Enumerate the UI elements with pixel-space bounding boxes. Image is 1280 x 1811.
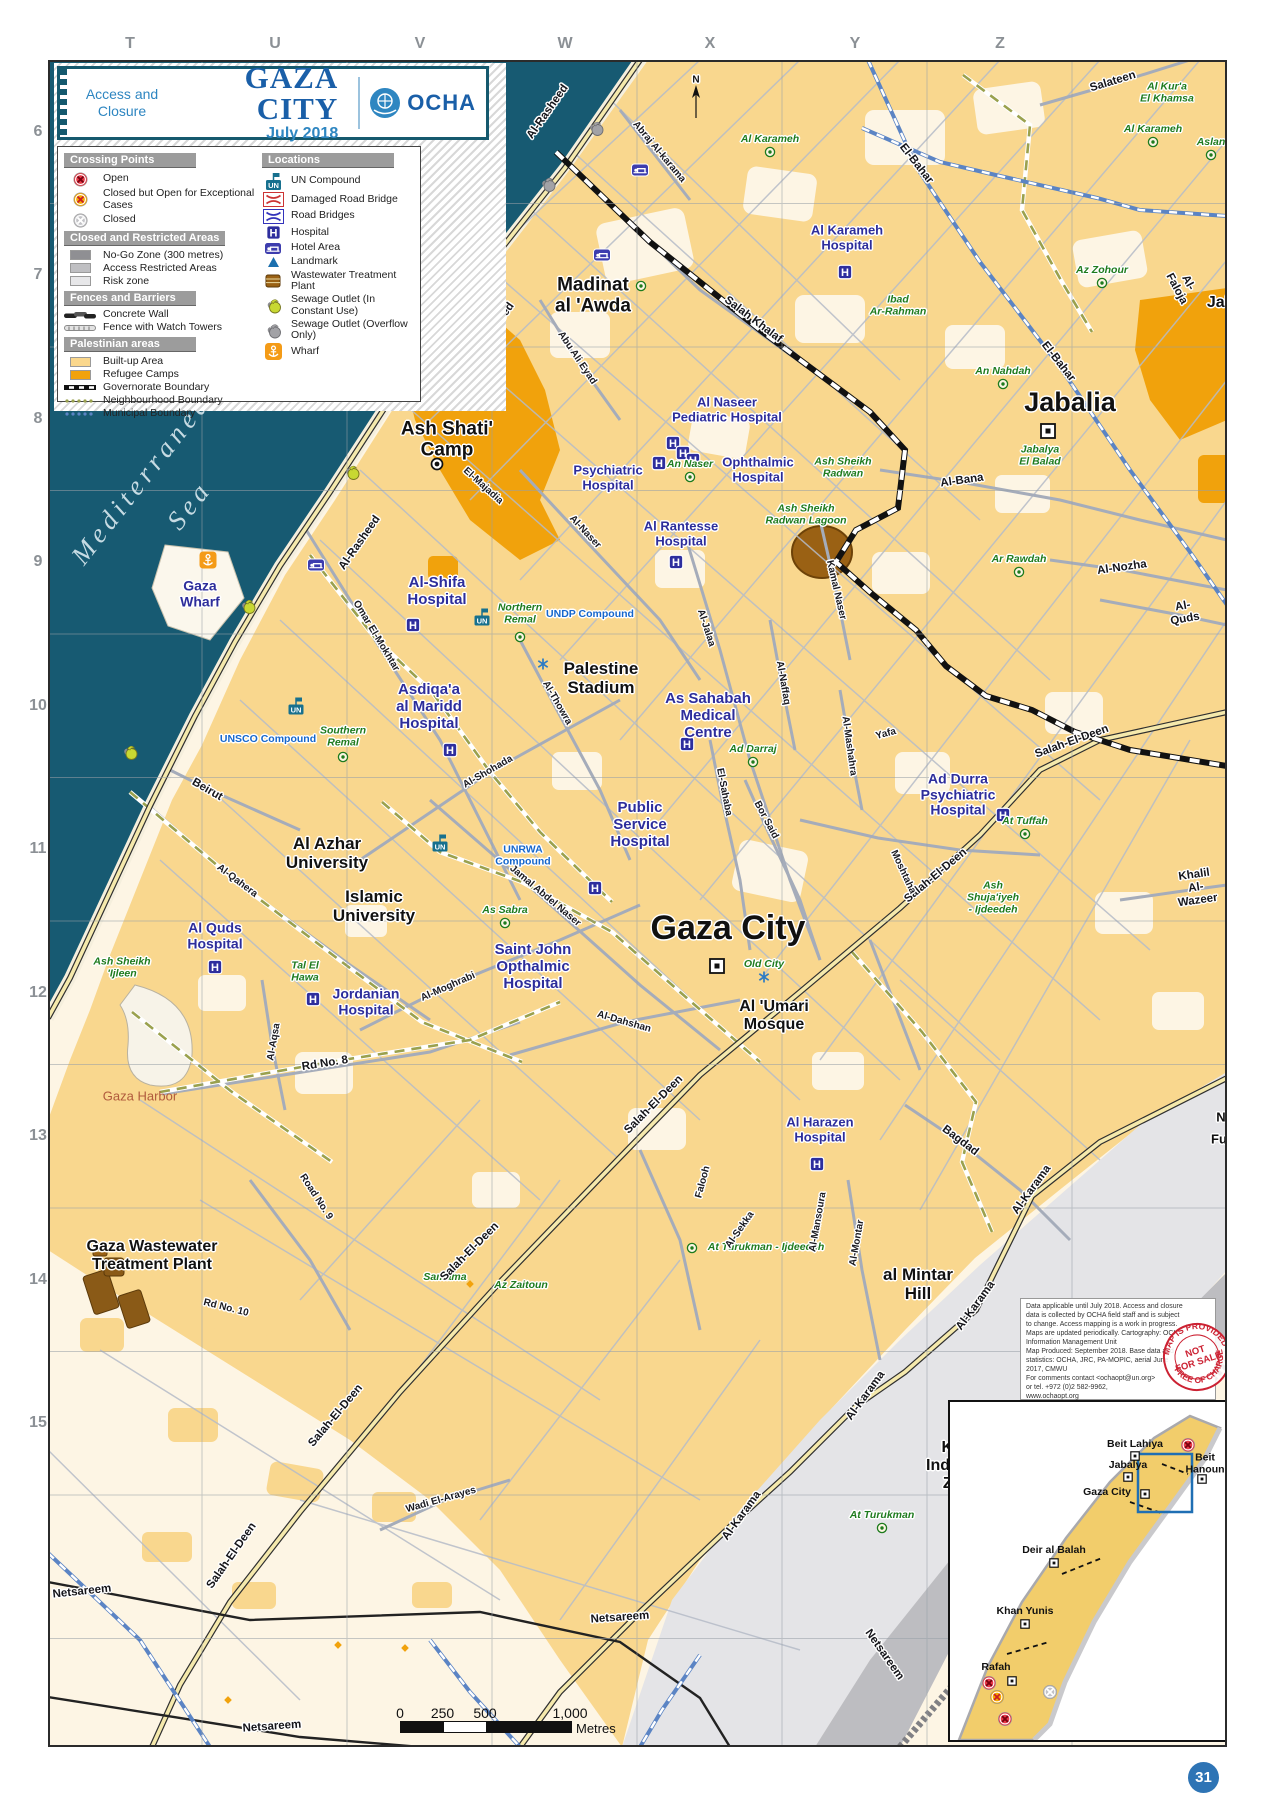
inset-label-layer: Beit LahiyaBeit HanounJabalyaGaza CityDe… [950,1402,1225,1740]
inset-city-label: Beit Hanoun [1185,1452,1224,1476]
facility-label: Saint John Opthalmic Hospital [495,942,572,992]
road-label: Netsareem [862,1627,906,1683]
road-label: Khalil Al-Wazeer [1174,866,1219,910]
fence-icon [64,324,96,332]
town-marker-icon [1140,1489,1150,1499]
road-label: Al-Rasheed [525,82,572,141]
facility-label: Al Harazen Hospital [786,1115,853,1144]
road-label: Al-Shohada [461,753,515,790]
map-label: UNSCO Compound [220,734,316,746]
road-label: Jamal Abdel Naser [507,863,582,929]
locality-label: Al Karameh [1124,124,1182,136]
not-for-sale-stamp: MAP IS PROVIDED FREE OF CHARGE NOT FOR S… [1161,1321,1227,1397]
legend-row: Wastewater Treatment Plant [262,270,414,293]
disclaimer-line: Data applicable until July 2018. Access … [1026,1303,1210,1312]
legend-row: Governorate Boundary [64,382,262,394]
scale-tick: 1,000 [552,1705,587,1721]
inset-city-label: Jabalya [1109,1460,1148,1472]
inset-city-label: Deir al Balah [1022,1545,1086,1557]
map-label: UNDP Compound [546,609,634,621]
un-emblem-icon [368,86,402,120]
inset-overview-map: Beit LahiyaBeit HanounJabalyaGaza CityDe… [948,1400,1227,1742]
road-label: Salah-El-Deen [622,1073,686,1137]
map-label: Palestine Stadium [564,659,639,697]
sw1-icon [64,250,96,260]
legend-row: Sewage Outlet (In Constant Use) [262,294,414,317]
legend-label: Wastewater Treatment Plant [291,270,414,293]
inset-city-label: Gaza City [1083,1487,1131,1499]
facility-label: Asdiqa'a al Maridd Hospital [396,682,462,732]
road-label: Falooh [693,1165,712,1200]
map-title-area: GAZA CITY July 2018 [177,62,348,143]
map-canvas: HHHHHHHHHHHHHHUNUNUN Mediterranean SeaMa… [48,60,1227,1747]
locality-label: At Tuffah [1002,816,1048,828]
scale-tick: 0 [396,1705,404,1721]
legend-section-header: Crossing Points [64,153,196,168]
sw3-icon [64,276,96,286]
facility-label: Al Naseer Pediatric Hospital [672,395,782,424]
road-label: Salah-El-Deen [1033,723,1110,762]
crossing-status-icon [998,1712,1013,1727]
crossing-status-icon [982,1676,997,1691]
road-label: Salah-El-Deen [205,1521,260,1592]
inset-city-label: Beit Lahiya [1107,1439,1163,1451]
wastewater-plant-icon [262,274,284,288]
locality-label: An Nahdah [975,366,1030,378]
map-label: Jabalia [1207,294,1227,312]
grid-col-Z: Z [995,35,1005,53]
legend-label: Access Restricted Areas [103,263,262,275]
legend-section-header: Locations [262,153,394,168]
town-marker-icon [1130,1451,1140,1461]
grid-row-6: 6 [34,123,43,141]
scale-unit: Metres [576,1721,616,1736]
locality-label: Ibad Ar-Rahman [870,294,927,318]
road-label: Al-Naser [567,513,603,551]
locality-label: At Turukman [850,1510,915,1522]
sewage-outlet-constant-icon [262,297,284,314]
road-label: Al-Naffaq [774,660,793,706]
road-label: El-Bahar [1038,339,1077,384]
grid-row-9: 9 [34,553,43,571]
locality-label: As Sabra [482,905,528,917]
road-label: Beirut [189,776,224,804]
wharf-icon [262,343,284,360]
svg-text:UN: UN [268,181,279,190]
legend-row: Closed [64,213,262,228]
map-label: Al Azhar University [286,834,368,872]
legend-label: Landmark [291,256,414,268]
program-line1: Access and [67,86,177,104]
xR-icon [64,172,96,187]
grid-row-15: 15 [29,1414,47,1432]
bridgeB-icon [262,209,284,224]
sw2-icon [64,263,96,273]
legend-row: Built-up Area [64,356,262,368]
locality-label: Northern Remal [498,602,542,626]
road-label: Al-Nozha [1096,558,1147,578]
town-marker-icon [1049,1558,1059,1568]
facility-label: Al-Shifa Hospital [407,575,466,609]
locality-label: Tal El Hawa [291,960,319,984]
disclaimer-line: data is collected by OCHA field staff an… [1026,1312,1210,1321]
road-label: Yafa [875,726,898,742]
grid-col-V: V [415,35,426,53]
road-label: Al-Aqsa [265,1022,283,1061]
hotel-icon [262,242,284,255]
map-label: Al 'Umari Mosque [739,998,809,1034]
locality-label: Ash Sheikh Radwan [814,456,871,480]
legend-row: Open [64,172,262,187]
facility-label: Ophthalmic Hospital [722,455,794,484]
legend-row: Concrete Wall [64,309,262,321]
legend-row: No-Go Zone (300 metres) [64,250,262,262]
map-label: N [1216,1111,1225,1126]
facility-label: Psychiatric Hospital [573,463,642,492]
locality-label: Ad Darraj [729,744,776,756]
legend-section-header: Closed and Restricted Areas [64,231,225,246]
legend-label: Wharf [291,346,414,358]
legend-label: Fence with Watch Towers [103,322,262,334]
road-label: Al-Karama [844,1369,888,1423]
legend-label: Sewage Outlet (In Constant Use) [291,294,414,317]
road-label: Al-Montar [847,1219,866,1267]
map-label: UNRWA Compound [495,844,550,868]
wall-icon [64,311,96,320]
legend-column: Crossing PointsOpenClosed but Open for E… [64,151,262,397]
legend: Crossing PointsOpenClosed but Open for E… [57,146,421,402]
map-date: July 2018 [177,124,338,143]
legend-row: Wharf [262,343,414,360]
locality-label: Ash Sheikh 'Ijleen [93,956,150,980]
legend-row: Municipal Boundary [64,408,262,420]
facility-label: As Sahabah Medical Centre [665,691,751,741]
map-label: al Mintar Hill [883,1265,953,1303]
locality-label: Ar Rawdah [992,554,1047,566]
legend-label: Neighbourhood Boundary [103,395,262,407]
road-label: Salah-El-Deen [306,1382,366,1450]
scale-bar-graphic [400,1721,572,1733]
program-name: Access and Closure [67,86,177,121]
town-marker-icon [1020,1619,1030,1629]
legend-row: Refugee Camps [64,369,262,381]
road-label: Al-Faloja [1160,260,1204,312]
legend-label: Hospital [291,227,414,239]
locality-label: Az Zaitoun [494,1280,548,1292]
town-marker-icon [1123,1472,1133,1482]
locality-label: Aslan [1197,137,1226,149]
page-number-badge: 31 [1188,1762,1219,1793]
legend-label: Damaged Road Bridge [291,194,414,206]
legend-section-header: Palestinian areas [64,337,196,352]
legend-label: Risk zone [103,276,262,288]
locality-label: Old City [744,959,784,971]
road-label: Road No. 9 [297,1172,335,1222]
hospital-icon: H [262,225,284,240]
road-label: Al-Mashahra [839,716,858,777]
road-label: Abu Ali Eyad [555,329,599,386]
road-label: Al-Karama [720,1489,764,1543]
road-label: Bor Said [751,799,780,841]
svg-text:H: H [269,228,277,240]
legend-label: Concrete Wall [103,309,262,321]
map-label: Gaza Harbor [103,1090,177,1105]
ocha-wordmark: OCHA [407,90,476,116]
sewage-outlet-overflow-icon [262,322,284,339]
gov-icon [64,384,96,391]
legend-label: UN Compound [291,175,414,187]
town-marker-icon [1197,1474,1207,1484]
facility-label: Al Rantesse Hospital [644,519,718,548]
legend-label: Refugee Camps [103,369,262,381]
legend-label: Closed [103,214,262,226]
perforation-edge [60,69,67,137]
map-label: Fu [1211,1133,1227,1148]
map-label: Ash Shati' Camp [401,419,493,462]
neigh-icon [64,398,96,404]
road-label: Salah Khalaf [722,294,785,346]
inset-city-label: Khan Yunis [997,1606,1054,1618]
map-title: GAZA CITY [177,62,338,124]
facility-label: Al Karameh Hospital [811,223,883,252]
legend-row: Damaged Road Bridge [262,192,414,207]
map-label: N [692,74,699,85]
road-label: Al-Moghrabi [419,970,477,1004]
ocha-logo: OCHA [368,86,486,120]
grid-col-X: X [705,35,716,53]
facility-label: Public Service Hospital [610,800,669,850]
town-marker-icon [1007,1676,1017,1686]
title-block: Access and Closure GAZA CITY July 2018 O… [57,66,489,140]
grid-row-13: 13 [29,1127,47,1145]
grid-row-11: 11 [30,840,47,858]
road-label: Rd No. 8 [301,1054,349,1074]
legend-row: HHospital [262,225,414,240]
xA-icon [64,192,96,207]
locality-label: Az Zohour [1076,265,1128,277]
map-label: Madinat al 'Awda [555,275,631,318]
road-label: Wadi El-Arayes [405,1485,478,1516]
road-label: Al-Rasheed [337,513,384,572]
road-label: El-Sahaba [714,767,734,817]
road-label: Salah-El-Deen [902,846,970,906]
locality-label: An Naser [667,459,713,471]
road-label: Netsareem [242,1719,302,1736]
header-divider [358,77,360,129]
legend-row: Access Restricted Areas [64,263,262,275]
legend-label: Built-up Area [103,356,262,368]
grid-row-8: 8 [34,410,43,428]
road-label: Rd No. 10 [202,1297,249,1319]
grid-row-7: 7 [34,266,43,284]
road-label: Kamal Naser [824,559,849,621]
road-label: Salah-El-Deen [438,1220,502,1284]
road-label: Al-Bana [940,472,985,491]
scale-tick: 500 [473,1705,496,1721]
road-label: El-Bahar [896,141,935,186]
facility-label: Gaza Wharf [180,578,220,609]
road-label: Netsareem [590,1610,650,1627]
facility-label: Ad Durra Psychiatric Hospital [921,771,996,818]
road-label: Abraj Al-karama [630,119,688,185]
legend-label: Sewage Outlet (Overflow Only) [291,319,414,342]
muni-icon [64,411,96,417]
crossing-status-icon [1043,1685,1058,1700]
legend-section-header: Fences and Barriers [64,291,196,306]
legend-row: Neighbourhood Boundary [64,395,262,407]
facility-label: Al Quds Hospital [187,920,242,951]
grid-col-Y: Y [850,35,861,53]
road-label: Al-Dahshan [596,1009,652,1035]
legend-label: Closed but Open for Exceptional Cases [103,188,262,211]
legend-row: Hotel Area [262,242,414,255]
road-label: Al-Quds [1161,597,1208,630]
legend-label: Open [103,173,262,185]
page: TUVWXYZ 6789101112131415 [0,0,1280,1811]
road-label: Bagdad [939,1123,980,1159]
legend-label: No-Go Zone (300 metres) [103,250,262,262]
grid-row-10: 10 [29,697,47,715]
grid-col-T: T [125,35,135,53]
xG-icon [64,213,96,228]
road-label: Omar El-Mokhtar [350,599,401,674]
program-line2: Closure [67,103,177,121]
legend-label: Hotel Area [291,242,414,254]
legend-row: UNUN Compound [262,172,414,191]
map-label: Gaza City [651,909,806,947]
legend-label: Municipal Boundary [103,408,262,420]
locality-label: Ash Sheikh Radwan Lagoon [765,503,846,527]
swB-icon [64,357,96,367]
disclaimer-box: Data applicable until July 2018. Access … [1020,1298,1216,1400]
scale-bar: 02505001,000 Metres [400,1705,660,1733]
crossing-status-icon [1181,1438,1196,1453]
locality-label: Al Kur'a El Khamsa [1140,81,1194,105]
road-label: Al-Qahera [215,862,260,900]
road-label: El-Majadia [461,465,505,506]
road-label: Netsareem [52,1583,112,1602]
swC-icon [64,370,96,380]
legend-label: Governorate Boundary [103,382,262,394]
legend-row: Fence with Watch Towers [64,322,262,334]
crossing-status-icon [990,1690,1005,1705]
road-label: Al-Jalaa [695,608,717,648]
grid-col-W: W [557,35,572,53]
road-label: Al-Mansoura [807,1191,829,1253]
legend-column: LocationsUNUN CompoundDamaged Road Bridg… [262,151,414,397]
legend-row: Closed but Open for Exceptional Cases [64,188,262,211]
locality-label: Southern Remal [320,725,366,749]
scale-tick: 250 [431,1705,454,1721]
facility-label: Jordanian Hospital [333,986,400,1017]
legend-row: Landmark [262,256,414,268]
map-label: Islamic University [333,887,415,925]
legend-row: Risk zone [64,276,262,288]
grid-col-U: U [269,35,281,53]
legend-row: Road Bridges [262,209,414,224]
legend-row: Sewage Outlet (Overflow Only) [262,319,414,342]
locality-label: Ash Shuja'iyeh - Ijdeedeh [967,880,1019,915]
un-compound-icon: UN [262,172,284,191]
bridgeR-icon [262,192,284,207]
legend-label: Road Bridges [291,210,414,222]
locality-label: Al Karameh [741,134,799,146]
road-label: Al-Karama [954,1279,998,1333]
locality-label: Jabalya El Balad [1019,444,1060,468]
map-label: Jabalia [1024,387,1116,417]
road-label: Moshtaha [888,848,918,895]
scale-ticks: 02505001,000 [400,1705,660,1721]
grid-row-14: 14 [29,1271,47,1289]
map-label: Gaza Wastewater Treatment Plant [86,1238,217,1274]
inset-city-label: Rafah [981,1662,1010,1674]
road-label: Salateen [1088,69,1137,95]
tri-icon [262,256,284,268]
road-label: Al-Karama [1010,1163,1054,1217]
grid-row-12: 12 [29,984,47,1002]
